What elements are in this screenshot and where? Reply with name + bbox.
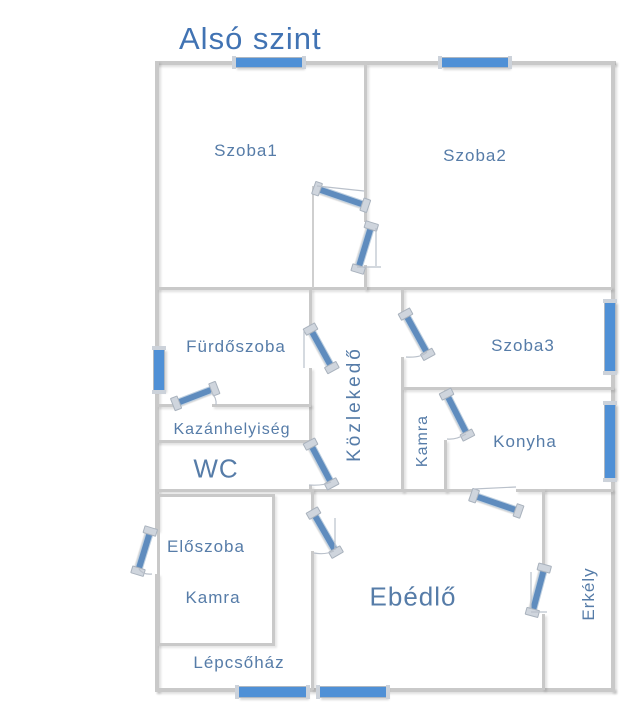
room-label-kamra-also: Kamra <box>185 588 240 608</box>
door-wc <box>307 443 334 485</box>
room-label-szoba3: Szoba3 <box>491 336 555 356</box>
door-szoba2 <box>355 226 375 269</box>
wall-kazanhelyiseg-bottom <box>157 440 311 443</box>
wall-kamra-right <box>444 440 447 492</box>
room-label-ebedlo: Ebédlő <box>370 582 457 613</box>
wall-erkely-left-lower <box>542 614 545 690</box>
wall-szoba3-konyha <box>402 387 614 390</box>
wall-lower-section-top-right <box>516 489 613 492</box>
swing-konyha-ebedlo <box>474 487 516 489</box>
floor-plan: Alsó szint <box>0 0 631 722</box>
window-szoba3-right <box>604 302 616 372</box>
room-label-lepcsohaz: Lépcsőház <box>193 653 284 673</box>
room-label-eloszoba: Előszoba <box>167 537 245 557</box>
window-ebedlo-bottom <box>319 686 387 698</box>
door-kazanhelyiseg <box>176 385 215 406</box>
room-label-kozlekedo: Közlekedő <box>344 346 366 462</box>
door-szoba3 <box>403 313 431 355</box>
wall-erkely-left-upper <box>542 489 545 568</box>
door-konyha-ebedlo <box>474 492 519 514</box>
door-furdoszoba <box>308 328 335 369</box>
wall-middle-horizontal <box>157 287 612 290</box>
door-szoba1 <box>317 185 366 209</box>
room-label-furdoszoba: Fürdőszoba <box>186 337 286 357</box>
window-szoba2-top <box>441 57 509 68</box>
window-lepcsohaz-bottom <box>238 686 307 698</box>
wall-outer-left-upper <box>155 61 159 531</box>
room-label-wc: WC <box>193 454 238 485</box>
room-label-erkely: Erkély <box>579 567 599 620</box>
door-ebedlo-hall <box>311 512 339 553</box>
wall-ebedlo-left-lower <box>311 551 314 690</box>
wall-outer-top <box>155 61 616 65</box>
room-label-kamra-felso: Kamra <box>414 415 432 467</box>
room-label-kazanhelyiseg: Kazánhelyiség <box>173 421 290 439</box>
room-label-szoba1: Szoba1 <box>214 141 278 161</box>
wall-outer-right <box>611 61 615 692</box>
wall-lower-section-top-left <box>157 489 472 492</box>
page-title: Alsó szint <box>179 21 322 57</box>
room-label-konyha: Konyha <box>493 432 557 452</box>
door-entrance <box>134 531 153 572</box>
wall-nook-thin <box>312 186 314 288</box>
window-szoba1-top <box>235 57 303 68</box>
wall-furdoszoba-bottom-right <box>212 404 311 407</box>
wall-corridor-right-2 <box>401 357 404 492</box>
room-box-eloszoba-kamra <box>157 494 275 646</box>
window-furdoszoba-left <box>153 349 165 391</box>
window-konyha-right <box>604 404 616 479</box>
door-kamra <box>443 393 470 436</box>
door-erkely <box>529 568 548 613</box>
room-label-szoba2: Szoba2 <box>443 146 507 166</box>
